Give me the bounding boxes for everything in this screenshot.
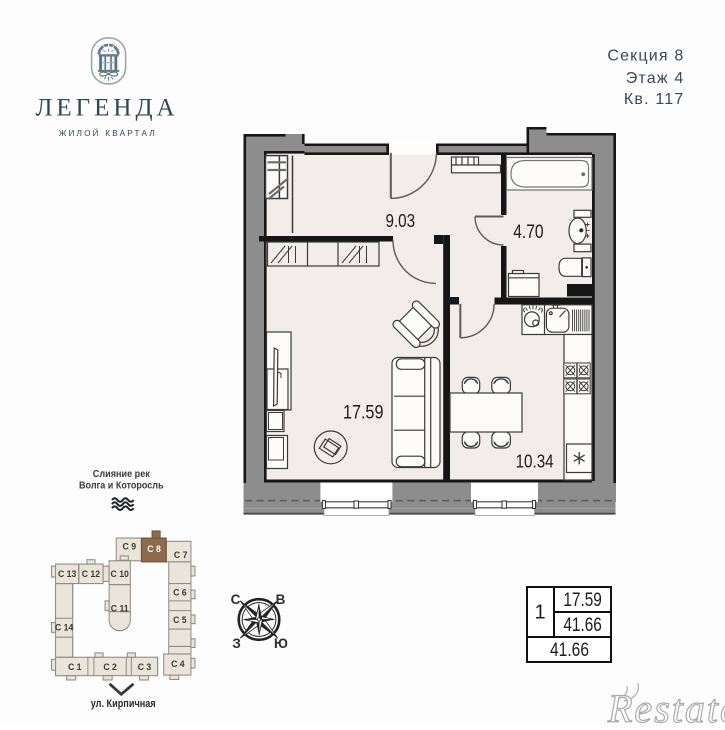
svg-text:С 5: С 5 xyxy=(173,615,187,625)
svg-text:С 3: С 3 xyxy=(138,662,152,672)
svg-text:З: З xyxy=(232,636,240,651)
svg-text:9.03: 9.03 xyxy=(386,210,416,231)
svg-text:С 7: С 7 xyxy=(174,550,188,560)
svg-text:Секция 8: Секция 8 xyxy=(607,48,684,65)
svg-text:С 2: С 2 xyxy=(103,662,117,672)
svg-text:17.59: 17.59 xyxy=(343,403,384,424)
svg-text:1: 1 xyxy=(534,602,545,624)
svg-text:Волга и Которосль: Волга и Которосль xyxy=(79,481,164,492)
svg-text:С 11: С 11 xyxy=(111,603,129,613)
svg-text:С 8: С 8 xyxy=(147,544,161,554)
svg-text:ул. Кирпичная: ул. Кирпичная xyxy=(91,698,156,710)
svg-text:Restate: Restate xyxy=(607,686,725,725)
svg-text:С 14: С 14 xyxy=(55,622,73,632)
svg-text:С 4: С 4 xyxy=(171,659,185,669)
svg-text:17.59: 17.59 xyxy=(563,590,602,611)
svg-text:Ю: Ю xyxy=(274,636,288,651)
svg-text:С 9: С 9 xyxy=(123,541,137,551)
svg-text:Кв. 117: Кв. 117 xyxy=(624,91,685,108)
svg-text:С 6: С 6 xyxy=(173,587,187,597)
svg-text:ЖИЛОЙ КВАРТАЛ: ЖИЛОЙ КВАРТАЛ xyxy=(59,127,157,138)
svg-text:Этаж 4: Этаж 4 xyxy=(626,70,685,87)
svg-text:41.66: 41.66 xyxy=(563,615,602,636)
svg-text:Слияние рек: Слияние рек xyxy=(93,469,151,480)
svg-text:С 10: С 10 xyxy=(111,569,129,579)
svg-text:С 12: С 12 xyxy=(82,569,100,579)
svg-text:В: В xyxy=(276,592,286,607)
svg-text:10.34: 10.34 xyxy=(516,451,554,471)
svg-text:4.70: 4.70 xyxy=(513,222,543,243)
svg-text:С: С xyxy=(231,592,241,607)
svg-text:С 13: С 13 xyxy=(58,569,76,579)
svg-text:С 1: С 1 xyxy=(68,662,82,672)
svg-text:ЛЕГЕНДА: ЛЕГЕНДА xyxy=(35,95,178,122)
svg-text:41.66: 41.66 xyxy=(550,640,589,661)
